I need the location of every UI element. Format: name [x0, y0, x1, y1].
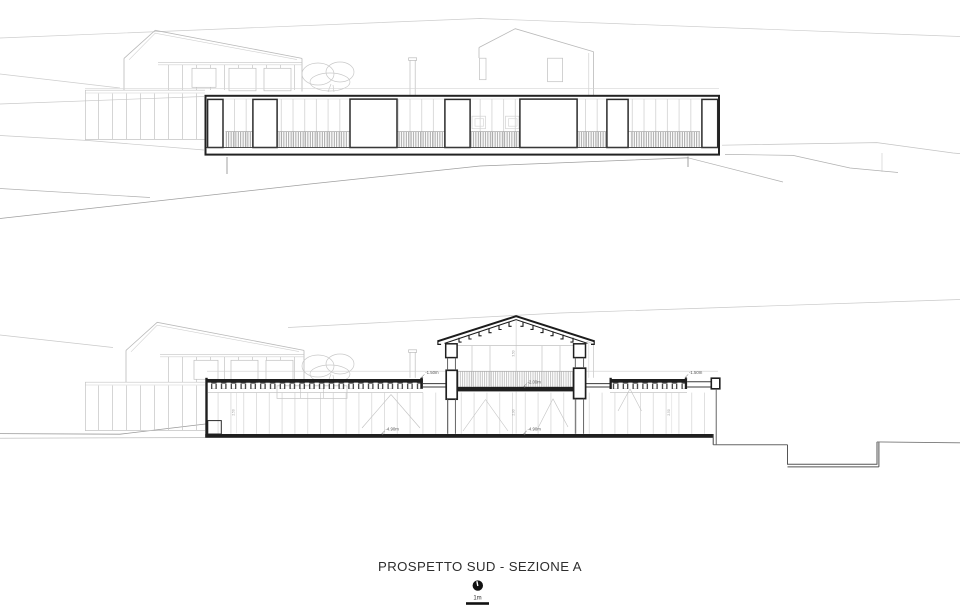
scale-bar: [466, 602, 489, 605]
left-section-wall: [205, 378, 207, 438]
facade-panel: [520, 99, 577, 147]
level-annotation: -4.90m: [528, 427, 542, 432]
glass-pavilion-section: [85, 382, 205, 430]
chimney-section: [409, 350, 417, 378]
tree: [302, 62, 354, 92]
main-building-facade: [206, 96, 720, 156]
joist-teeth: [209, 383, 421, 389]
level-annotation: -4.90m: [386, 427, 400, 432]
support-pilotis: [227, 157, 688, 175]
tree-section: [302, 354, 354, 383]
joist-teeth: [612, 383, 685, 389]
facade-panel: [253, 99, 277, 147]
level-annotation: -2.00m: [528, 379, 542, 384]
title-block: PROSPETTO SUD - SEZIONE A 1m: [378, 559, 582, 605]
facade-panel: [350, 99, 397, 147]
dim-label-basement: 2.90: [511, 409, 515, 415]
facade-panel: [445, 99, 470, 147]
facade-panel: [208, 99, 223, 147]
chimney: [409, 58, 417, 95]
background-house-left-section: [126, 322, 304, 383]
background-house-right-section: [587, 341, 594, 378]
facade-panel: [607, 99, 628, 147]
courtyard-floor-beam: [457, 387, 574, 392]
architectural-drawing: 3.50 2.90 2.50 2.50 -1.50m -1.50m -2.00m: [0, 0, 960, 610]
elevation-drawing: [0, 19, 960, 219]
dim-label-wing-left: 2.50: [232, 409, 236, 415]
drawing-sheet: 3.50 2.90 2.50 2.50 -1.50m -1.50m -2.00m: [0, 0, 960, 610]
drawing-title: PROSPETTO SUD - SEZIONE A: [378, 559, 582, 574]
background-house-left: [124, 30, 302, 91]
scale-label: 1m: [473, 596, 481, 602]
basement-wall-lines: [208, 393, 711, 434]
sunken-basin: [713, 442, 960, 467]
background-house-right: [479, 29, 594, 95]
level-annotation: -1.50m: [689, 370, 703, 375]
facade-panel: [702, 99, 718, 147]
right-wing-beam: [610, 378, 688, 389]
dim-label-wing-right: 2.50: [667, 409, 671, 415]
level-annotation: -1.50m: [425, 370, 439, 375]
left-wing-beam: [207, 378, 423, 389]
dim-label-gable: 3.50: [511, 350, 515, 356]
section-drawing: 3.50 2.90 2.50 2.50 -1.50m -1.50m -2.00m: [0, 300, 960, 467]
north-indicator-icon: [473, 580, 483, 590]
gable-railing-hatch: [458, 371, 573, 386]
